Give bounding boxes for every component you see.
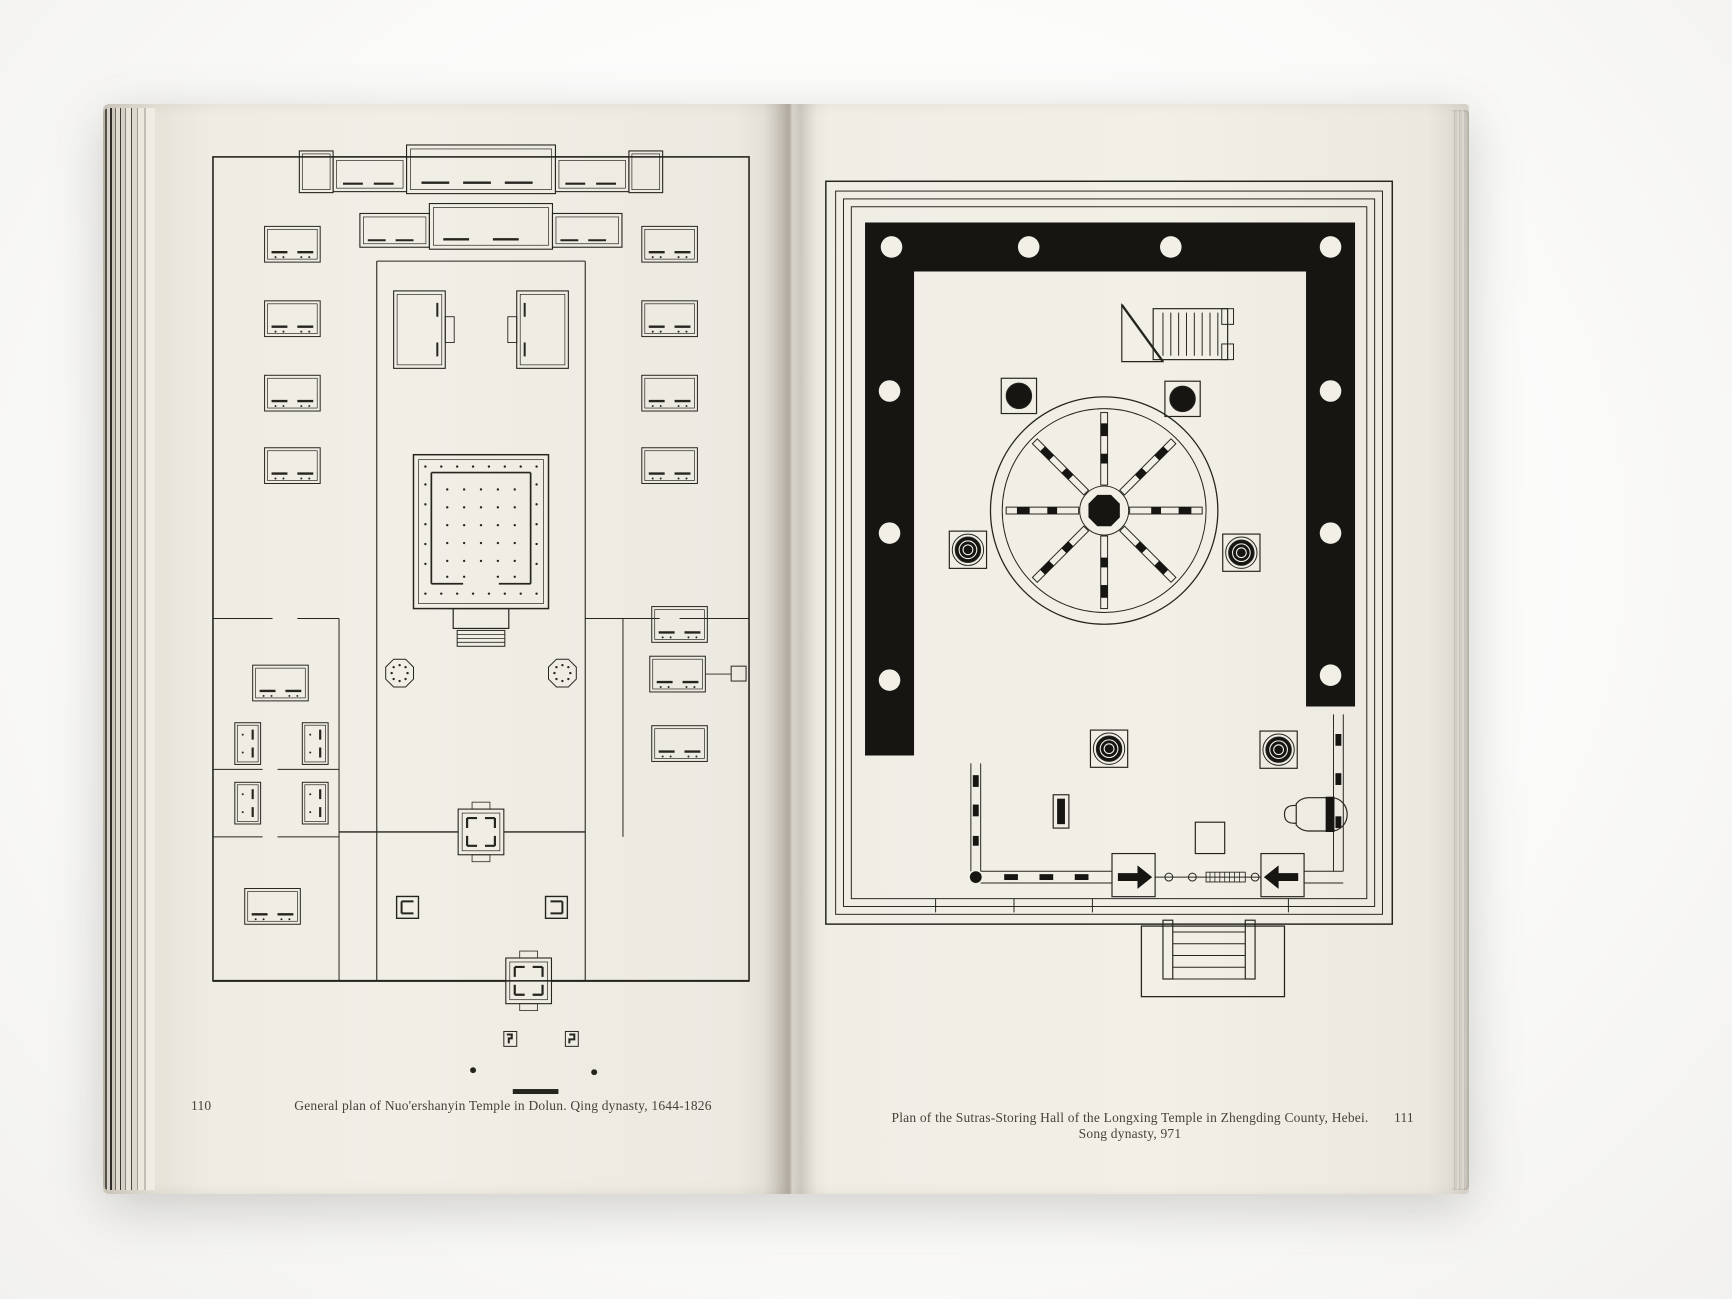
- second-hall-row: [360, 204, 622, 250]
- stacked-page-edges: [103, 108, 155, 1190]
- left-plan-drawing: [203, 142, 759, 1095]
- book-gutter-shadow: [763, 104, 817, 1194]
- interior-column-icon: [1165, 381, 1200, 416]
- main-hall: [413, 455, 548, 647]
- arrow-right-icon: [1118, 865, 1152, 889]
- orientation-dots: [470, 1067, 597, 1075]
- southwest-cluster: [213, 665, 339, 924]
- right-plan-drawing: [818, 146, 1406, 1028]
- southeast-cluster: [650, 607, 746, 762]
- central-compound-wall: [377, 261, 585, 981]
- photograph-of-open-book: 110 General plan of Nuo'ershanyin Temple…: [0, 0, 1732, 1299]
- north-hall-row: [299, 145, 662, 194]
- middle-gate-pavilion: [458, 802, 504, 862]
- right-caption: Plan of the Sutras-Storing Hall of the L…: [880, 1110, 1380, 1142]
- left-page: 110 General plan of Nuo'ershanyin Temple…: [103, 104, 790, 1194]
- left-plate: [203, 142, 759, 1095]
- revolving-sutra-cabinet-wheel: [990, 397, 1217, 624]
- interior-column-ringed-icon: [1260, 731, 1297, 768]
- legend-glyphs: [504, 1031, 578, 1046]
- entrance-stairs: [1141, 920, 1284, 996]
- interior-column-ringed-icon: [1090, 730, 1127, 767]
- west-building-column: [265, 226, 321, 483]
- left-page-number: 110: [191, 1098, 211, 1114]
- main-hall-porch: [453, 609, 509, 629]
- interior-column-ringed-icon: [949, 531, 986, 568]
- temple-enclosure-wall: [213, 157, 749, 981]
- facing-side-halls: [394, 291, 569, 368]
- book-block-edge: [1452, 110, 1469, 1190]
- upper-staircase-icon: [1122, 305, 1234, 362]
- interior-column-ringed-icon: [1223, 534, 1260, 571]
- gallery-band: [865, 222, 1355, 755]
- flanking-platforms: [397, 896, 568, 918]
- left-caption: General plan of Nuo'ershanyin Temple in …: [253, 1098, 753, 1114]
- east-octagonal-pavilion-icon: [549, 659, 577, 687]
- scale-bar: [513, 1089, 559, 1094]
- open-book: 110 General plan of Nuo'ershanyin Temple…: [103, 104, 1469, 1194]
- main-hall-steps-icon: [457, 630, 505, 646]
- right-plate: [818, 146, 1406, 1028]
- right-page: Plan of the Sutras-Storing Hall of the L…: [790, 104, 1469, 1194]
- right-page-number: 111: [1394, 1110, 1414, 1126]
- interior-column-icon: [1001, 378, 1036, 413]
- stele-icon: [1053, 795, 1069, 828]
- east-building-column: [642, 226, 698, 483]
- altar-square-icon: [1195, 822, 1224, 853]
- gallery-column-circles: [879, 236, 1342, 691]
- arrow-left-icon: [1264, 865, 1298, 889]
- south-wall-band: [936, 899, 1289, 913]
- west-octagonal-pavilion-icon: [386, 659, 414, 687]
- column-dots: [424, 465, 538, 594]
